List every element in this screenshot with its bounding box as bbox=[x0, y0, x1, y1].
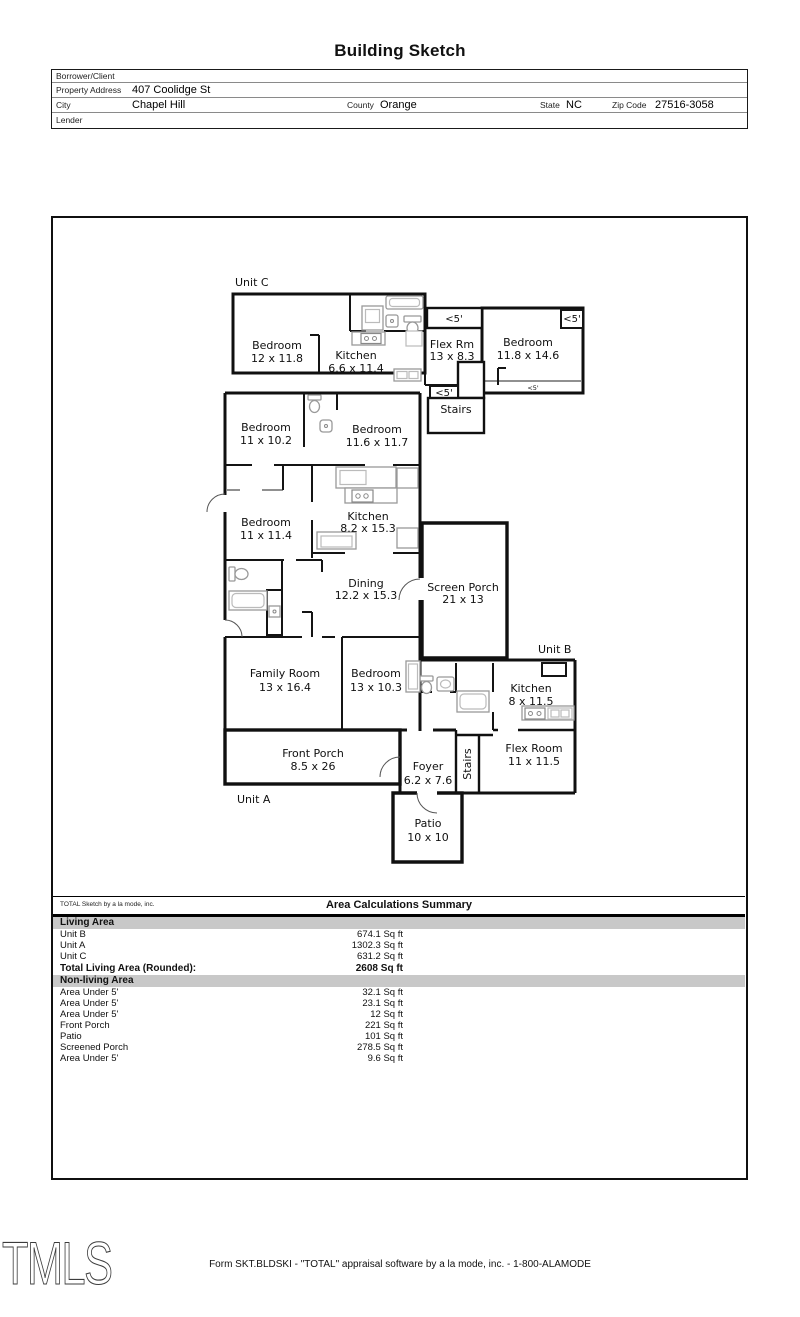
room-bedroom-a1-name: Bedroom bbox=[241, 421, 291, 434]
sink-icon bbox=[386, 315, 398, 327]
fridge-icon bbox=[397, 528, 418, 548]
utility-closet-icon bbox=[269, 606, 280, 617]
under5-label: <5' bbox=[527, 384, 539, 392]
stove-icon bbox=[345, 488, 397, 503]
room-flex-room-b-dims: 11 x 11.5 bbox=[508, 755, 560, 768]
sink-icon bbox=[437, 677, 454, 691]
non-living-area-header: Non-living Area bbox=[53, 975, 745, 987]
unit-a-kitchen-fixtures bbox=[317, 467, 418, 549]
under5-label: <5' bbox=[435, 388, 453, 399]
state-label: State bbox=[540, 100, 560, 110]
room-kitchen-c-name: Kitchen bbox=[335, 349, 376, 362]
room-family-room-name: Family Room bbox=[250, 667, 320, 680]
property-address-value: 407 Coolidge St bbox=[132, 84, 210, 96]
door-arc bbox=[417, 793, 437, 813]
summary-title: Area Calculations Summary bbox=[53, 899, 745, 911]
room-patio-dims: 10 x 10 bbox=[407, 831, 449, 844]
room-flex-rm-dims: 13 x 8.3 bbox=[430, 350, 475, 363]
room-dining-dims: 12.2 x 15.3 bbox=[335, 589, 398, 602]
borrower-label: Borrower/Client bbox=[56, 71, 115, 81]
room-bedroom-c-name: Bedroom bbox=[252, 339, 302, 352]
living-area-header: Living Area bbox=[53, 917, 745, 929]
county-value: Orange bbox=[380, 99, 417, 111]
room-bedroom-a2-dims: 11.6 x 11.7 bbox=[346, 436, 409, 449]
room-bedroom-a3-dims: 11 x 11.4 bbox=[240, 529, 292, 542]
city-county-state-zip-row: City Chapel Hill County Orange State NC … bbox=[52, 98, 747, 113]
sink-icon bbox=[320, 420, 332, 432]
stove-icon bbox=[352, 332, 385, 345]
washer-icon bbox=[362, 306, 383, 330]
room-front-porch-name: Front Porch bbox=[282, 747, 344, 760]
unit-a-bath-fixtures-top bbox=[308, 395, 332, 432]
total-living-area-row: Total Living Area (Rounded): 2608 Sq ft bbox=[53, 962, 745, 975]
table-row: Unit B 674.1 Sq ft bbox=[53, 929, 745, 940]
room-stairs-c-label: Stairs bbox=[440, 403, 472, 416]
table-row: Area Under 5' 12 Sq ft bbox=[53, 1009, 745, 1020]
property-address-row: Property Address 407 Coolidge St bbox=[52, 83, 747, 98]
county-label: County bbox=[347, 100, 374, 110]
city-value: Chapel Hill bbox=[132, 99, 185, 111]
table-row: Front Porch 221 Sq ft bbox=[53, 1020, 745, 1031]
building-sketch-page: Building Sketch Borrower/Client Property… bbox=[0, 0, 800, 1317]
toilet-icon bbox=[308, 395, 321, 413]
room-kitchen-b-name: Kitchen bbox=[510, 682, 551, 695]
room-kitchen-b-dims: 8 x 11.5 bbox=[509, 695, 554, 708]
table-row: Area Under 5' 9.6 Sq ft bbox=[53, 1053, 745, 1064]
room-screen-porch-dims: 21 x 13 bbox=[442, 593, 484, 606]
room-bedroom-a4-name: Bedroom bbox=[351, 667, 401, 680]
room-stairs-b-label: Stairs bbox=[461, 748, 474, 780]
form-footer-line: Form SKT.BLDSKI - "TOTAL" appraisal soft… bbox=[0, 1259, 800, 1270]
under5-label: <5' bbox=[563, 314, 581, 325]
table-row: Unit A 1302.3 Sq ft bbox=[53, 940, 745, 951]
room-kitchen-c-dims: 6.6 x 11.4 bbox=[328, 362, 384, 375]
room-front-porch-dims: 8.5 x 26 bbox=[291, 760, 336, 773]
property-address-label: Property Address bbox=[56, 85, 121, 95]
page-title: Building Sketch bbox=[0, 41, 800, 61]
door-arc bbox=[225, 620, 242, 637]
room-bedroom-c-dims: 12 x 11.8 bbox=[251, 352, 303, 365]
unit-a-label: Unit A bbox=[237, 793, 271, 806]
room-bedroom-a4-dims: 13 x 10.3 bbox=[350, 681, 402, 694]
lender-row: Lender bbox=[52, 113, 747, 127]
kitchen-counter-icon bbox=[522, 706, 574, 720]
area-calculations-summary: TOTAL Sketch by a la mode, inc. Area Cal… bbox=[53, 896, 745, 1064]
toilet-icon bbox=[229, 567, 248, 581]
room-family-room-dims: 13 x 16.4 bbox=[259, 681, 311, 694]
shower-icon bbox=[406, 661, 420, 692]
room-bedroom-a3-name: Bedroom bbox=[241, 516, 291, 529]
summary-header: TOTAL Sketch by a la mode, inc. Area Cal… bbox=[53, 897, 745, 914]
lender-label: Lender bbox=[56, 115, 82, 125]
door-arc bbox=[207, 494, 225, 512]
property-header-table: Borrower/Client Property Address 407 Coo… bbox=[51, 69, 748, 129]
table-row: Area Under 5' 23.1 Sq ft bbox=[53, 998, 745, 1009]
room-flex-room-b-name: Flex Room bbox=[505, 742, 562, 755]
dishwasher-icon bbox=[394, 369, 421, 381]
borrower-row: Borrower/Client bbox=[52, 70, 747, 83]
room-patio-name: Patio bbox=[415, 817, 442, 830]
fridge-icon bbox=[397, 468, 418, 488]
unit-b-kitchen-fixtures bbox=[522, 706, 574, 720]
door-arc bbox=[399, 579, 420, 600]
unit-b-label: Unit B bbox=[538, 643, 571, 656]
kitchen-counter-icon bbox=[336, 467, 396, 488]
bathtub-icon bbox=[386, 296, 423, 309]
table-row: Patio 101 Sq ft bbox=[53, 1031, 745, 1042]
city-label: City bbox=[56, 100, 71, 110]
room-foyer-name: Foyer bbox=[413, 760, 444, 773]
cabinet-icon bbox=[406, 331, 422, 346]
room-bedroom-a1-dims: 11 x 10.2 bbox=[240, 434, 292, 447]
room-bedroom-c2-dims: 11.8 x 14.6 bbox=[497, 349, 560, 362]
unit-b-bath-fixtures bbox=[406, 661, 489, 712]
door-arc bbox=[380, 757, 400, 777]
bathtub-icon bbox=[229, 591, 267, 610]
zip-value: 27516-3058 bbox=[655, 99, 714, 111]
unit-c-label: Unit C bbox=[235, 276, 269, 289]
zip-label: Zip Code bbox=[612, 100, 647, 110]
table-row: Screened Porch 278.5 Sq ft bbox=[53, 1042, 745, 1053]
room-foyer-dims: 6.2 x 7.6 bbox=[404, 774, 453, 787]
under5-label: <5' bbox=[445, 314, 463, 325]
toilet-icon bbox=[420, 676, 433, 694]
table-row: Area Under 5' 32.1 Sq ft bbox=[53, 987, 745, 998]
room-bedroom-c2-name: Bedroom bbox=[503, 336, 553, 349]
room-kitchen-a-dims: 8.2 x 15.3 bbox=[340, 522, 396, 535]
room-bedroom-a2-name: Bedroom bbox=[352, 423, 402, 436]
state-value: NC bbox=[566, 99, 582, 111]
table-row: Unit C 631.2 Sq ft bbox=[53, 951, 745, 962]
bathtub-icon bbox=[457, 691, 489, 712]
